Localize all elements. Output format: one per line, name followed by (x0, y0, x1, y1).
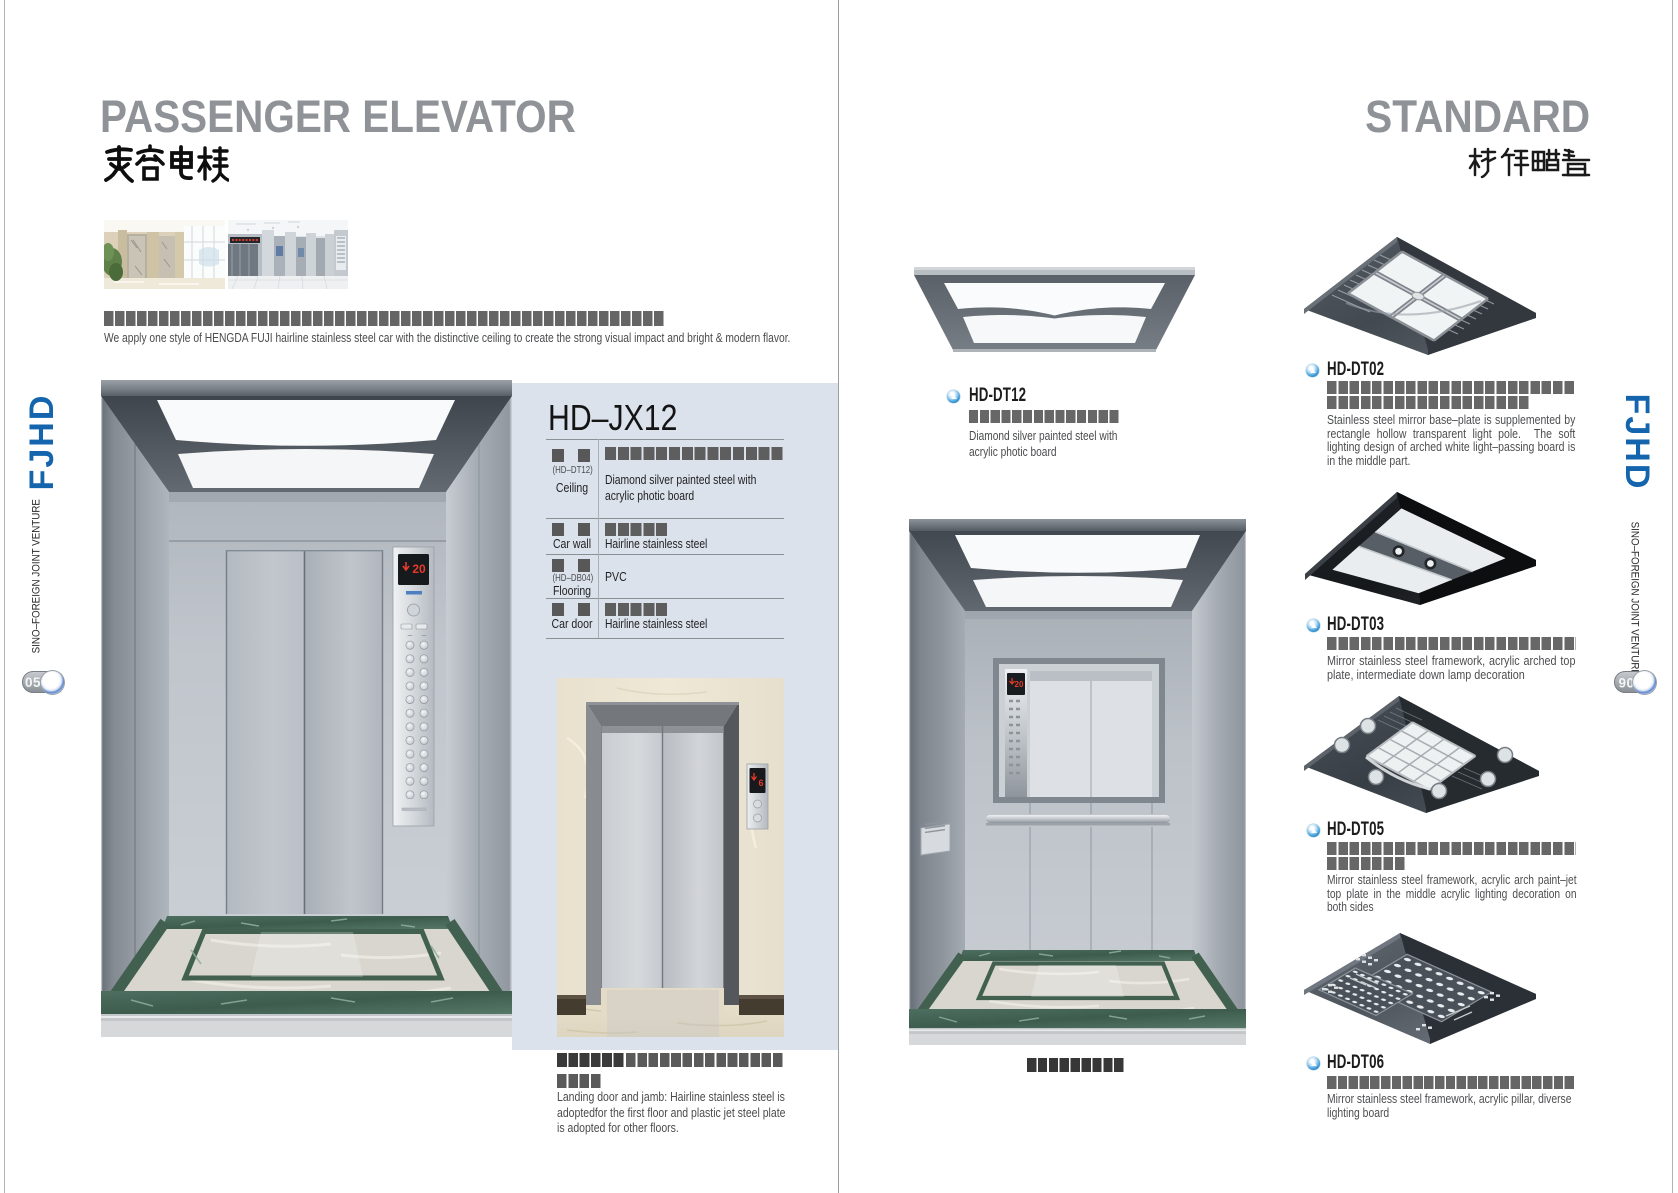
svg-text:20: 20 (1015, 680, 1024, 689)
svg-text:20: 20 (412, 562, 426, 576)
svg-text:6: 6 (758, 778, 763, 788)
